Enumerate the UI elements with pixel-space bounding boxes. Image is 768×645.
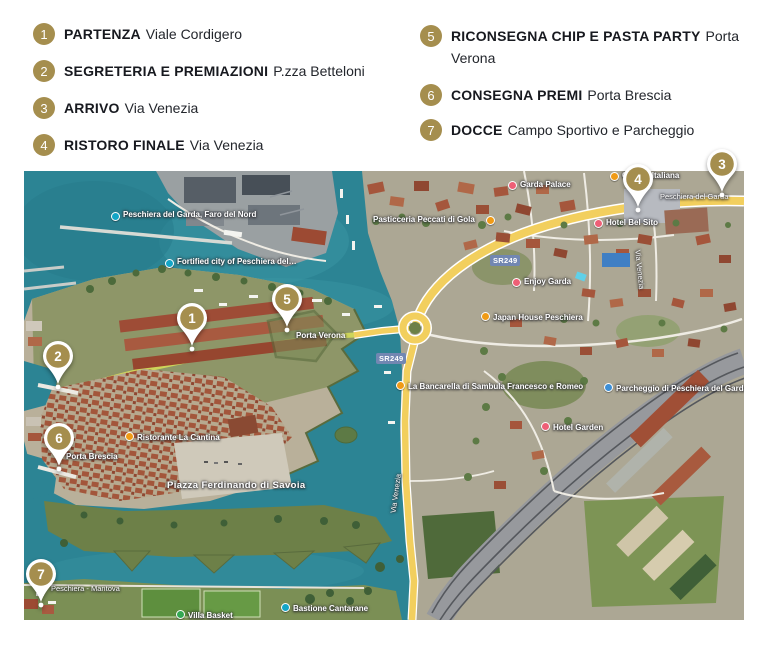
poi-japan-house-icon bbox=[481, 312, 490, 321]
map-label-porta-brescia: Porta Brescia bbox=[66, 452, 118, 461]
satellite-map: Peschiera del Garda, Faro del Nord Forti… bbox=[24, 171, 744, 620]
legend-item-label: CONSEGNA PREMI bbox=[451, 87, 582, 103]
poi-faro-icon bbox=[111, 212, 120, 221]
map-label-faro: Peschiera del Garda, Faro del Nord bbox=[123, 210, 256, 219]
poi-bastione-icon bbox=[281, 603, 290, 612]
legend-number-badge: 1 bbox=[33, 23, 55, 45]
map-label-enjoy-garda: Enjoy Garda bbox=[524, 277, 571, 286]
poi-fortified-city-icon bbox=[165, 259, 174, 268]
poi-bel-sito-icon bbox=[594, 219, 603, 228]
map-label-hotel-garden: Hotel Garden bbox=[553, 423, 603, 432]
legend-number-badge: 6 bbox=[420, 84, 442, 106]
legend-item-location: Via Venezia bbox=[125, 100, 199, 116]
map-label-ristorante: Ristorante La Cantina bbox=[137, 433, 220, 442]
legend-number-badge: 5 bbox=[420, 25, 442, 47]
poi-parcheggio-icon bbox=[604, 383, 613, 392]
legend-item-label: RISTORO FINALE bbox=[64, 137, 185, 153]
map-label-piazza: Piazza Ferdinando di Savoia bbox=[167, 480, 306, 491]
legend-item-location: Campo Sportivo e Parcheggio bbox=[508, 122, 695, 138]
svg-text:3: 3 bbox=[718, 157, 726, 172]
legend-item-location: Via Venezia bbox=[190, 137, 264, 153]
poi-pasticceria-icon bbox=[486, 216, 495, 225]
legend-item-consegna: 6 CONSEGNA PREMIPorta Brescia bbox=[420, 84, 751, 106]
poi-osteria-icon bbox=[610, 172, 619, 181]
road-badge-sr249: SR249 bbox=[376, 353, 406, 364]
map-label-bel-sito: Hotel Bel Sito bbox=[606, 218, 658, 227]
legend-item-location: Porta Brescia bbox=[587, 87, 671, 103]
legend-item-label: PARTENZA bbox=[64, 26, 141, 42]
poi-bancarella-icon bbox=[396, 381, 405, 390]
map-label-garda-palace: Garda Palace bbox=[520, 180, 571, 189]
map-label-ciclabile: Peschiera - Mantova bbox=[51, 584, 120, 593]
poi-garda-palace-icon bbox=[508, 181, 517, 190]
map-label-japan-house: Japan House Peschiera bbox=[493, 313, 583, 322]
map-label-top-road: Peschiera del Garda bbox=[660, 192, 728, 201]
legend-number-badge: 7 bbox=[420, 119, 442, 141]
legend-item-label: RICONSEGNA CHIP E PASTA PARTY bbox=[451, 28, 701, 44]
legend-item-partenza: 1 PARTENZAViale Cordigero bbox=[33, 23, 434, 45]
legend-item-location: P.zza Betteloni bbox=[273, 63, 365, 79]
poi-hotel-garden-icon bbox=[541, 422, 550, 431]
poi-enjoy-garda-icon bbox=[512, 278, 521, 287]
legend-item-label: ARRIVO bbox=[64, 100, 120, 116]
map-label-villa-basket: Villa Basket bbox=[188, 611, 233, 620]
legend-item-label: DOCCE bbox=[451, 122, 503, 138]
legend-item-ristoro: 4 RISTORO FINALEVia Venezia bbox=[33, 134, 434, 156]
race-map-flyer: 1 PARTENZAViale Cordigero 2 SEGRETERIA E… bbox=[0, 0, 768, 645]
legend-number-badge: 3 bbox=[33, 97, 55, 119]
legend-item-segreteria: 2 SEGRETERIA E PREMIAZIONIP.zza Bettelon… bbox=[33, 60, 434, 82]
legend-item-riconsegna: 5 RICONSEGNA CHIP E PASTA PARTYPorta Ver… bbox=[420, 25, 751, 69]
poi-ristorante-icon bbox=[125, 432, 134, 441]
map-label-osteria: Osteria Italiana bbox=[622, 171, 679, 180]
legend-item-docce: 7 DOCCECampo Sportivo e Parcheggio bbox=[420, 119, 751, 141]
legend-number-badge: 4 bbox=[33, 134, 55, 156]
legend-item-arrivo: 3 ARRIVOVia Venezia bbox=[33, 97, 434, 119]
poi-villa-basket-icon bbox=[176, 610, 185, 619]
map-label-pasticceria: Pasticceria Peccati di Gola bbox=[373, 215, 475, 224]
legend-item-location: Viale Cordigero bbox=[146, 26, 242, 42]
legend-number-badge: 2 bbox=[33, 60, 55, 82]
map-label-bancarella: La Bancarella di Sambula Francesco e Rom… bbox=[408, 382, 583, 391]
map-label-bastione: Bastione Cantarane bbox=[293, 604, 368, 613]
map-label-porta-verona: Porta Verona bbox=[296, 331, 345, 340]
satellite-scene bbox=[24, 171, 744, 620]
map-label-parcheggio: Parcheggio di Peschiera del Garda bbox=[616, 384, 744, 393]
legend-item-label: SEGRETERIA E PREMIAZIONI bbox=[64, 63, 268, 79]
map-label-fortified-city: Fortified city of Peschiera del… bbox=[177, 257, 297, 266]
road-badge-sr249: SR249 bbox=[490, 255, 520, 266]
